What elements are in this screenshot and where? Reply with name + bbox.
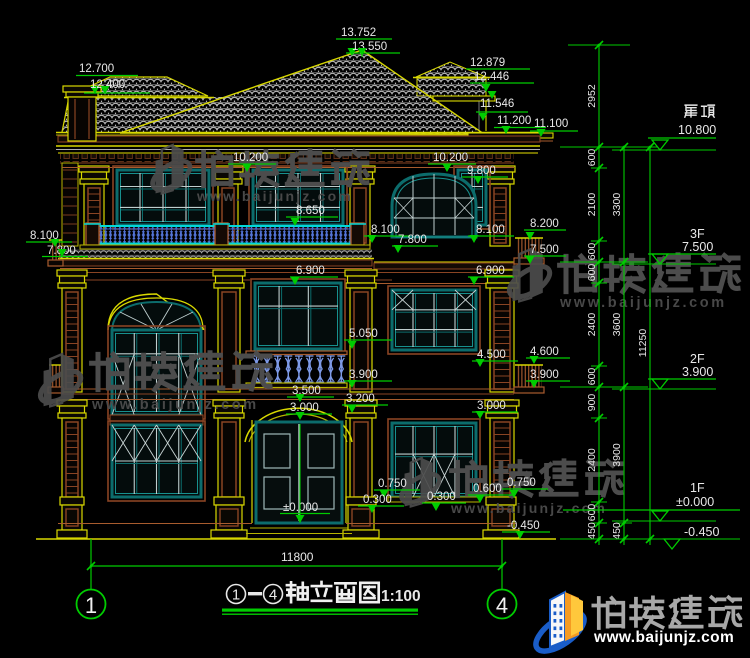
svg-text:www.baijunjz.com: www.baijunjz.com: [196, 188, 353, 204]
svg-text:2F: 2F: [690, 352, 705, 366]
svg-text:1:100: 1:100: [381, 588, 421, 605]
svg-text:7.800: 7.800: [398, 234, 427, 246]
svg-text:±0.000: ±0.000: [676, 495, 714, 509]
svg-text:2952: 2952: [586, 84, 598, 108]
svg-text:8.100: 8.100: [371, 224, 400, 236]
svg-text:3.900: 3.900: [349, 369, 378, 381]
svg-text:9.800: 9.800: [467, 165, 496, 177]
svg-text:www.baijunjz.com: www.baijunjz.com: [593, 629, 734, 646]
svg-text:0.600: 0.600: [473, 483, 502, 495]
svg-text:600: 600: [586, 504, 598, 522]
svg-text:11.100: 11.100: [534, 118, 568, 130]
svg-text:600: 600: [586, 149, 598, 167]
svg-text:6.900: 6.900: [476, 265, 505, 277]
svg-text:450: 450: [611, 522, 623, 540]
svg-text:3.000: 3.000: [477, 400, 506, 412]
svg-text:www.baijunjz.com: www.baijunjz.com: [559, 295, 727, 311]
svg-text:10.200: 10.200: [433, 152, 468, 164]
svg-text:5.050: 5.050: [349, 328, 378, 340]
svg-text:8.200: 8.200: [530, 218, 559, 230]
svg-text:www.baijunjz.com: www.baijunjz.com: [450, 500, 607, 516]
svg-text:600: 600: [586, 368, 598, 386]
svg-text:0.750: 0.750: [507, 477, 536, 489]
svg-text:4: 4: [496, 593, 508, 618]
svg-text:450: 450: [586, 522, 598, 540]
svg-text:3.000: 3.000: [290, 402, 319, 414]
svg-text:-0.450: -0.450: [684, 525, 719, 539]
svg-text:2100: 2100: [586, 193, 598, 217]
svg-text:8.650: 8.650: [296, 205, 325, 217]
svg-text:3.200: 3.200: [346, 393, 375, 405]
svg-text:10.200: 10.200: [233, 152, 268, 164]
svg-text:12.700: 12.700: [79, 63, 114, 75]
svg-text:0.300: 0.300: [363, 494, 392, 506]
svg-text:600: 600: [586, 264, 598, 282]
svg-text:7.500: 7.500: [530, 244, 559, 256]
svg-text:-0.450: -0.450: [507, 520, 540, 532]
svg-text:11250: 11250: [637, 329, 649, 358]
svg-text:8.100: 8.100: [476, 224, 505, 236]
svg-text:1F: 1F: [690, 481, 705, 495]
svg-text:12.446: 12.446: [474, 71, 509, 83]
svg-text:12.879: 12.879: [470, 57, 505, 69]
svg-text:3.900: 3.900: [682, 365, 713, 379]
svg-text:0.750: 0.750: [378, 478, 407, 490]
svg-text:www.baijunjz.com: www.baijunjz.com: [91, 397, 259, 413]
svg-text:13.550: 13.550: [352, 41, 387, 53]
svg-text:3600: 3600: [611, 313, 623, 337]
svg-text:3F: 3F: [690, 227, 705, 241]
svg-text:13.752: 13.752: [341, 27, 376, 39]
svg-text:2400: 2400: [586, 313, 598, 337]
svg-text:1: 1: [232, 587, 240, 604]
svg-text:11.200: 11.200: [497, 115, 531, 127]
svg-text:2400: 2400: [586, 448, 598, 472]
svg-text:6.900: 6.900: [296, 265, 325, 277]
svg-text:4: 4: [269, 587, 277, 604]
svg-text:7.500: 7.500: [682, 240, 713, 254]
svg-text:0.300: 0.300: [427, 491, 456, 503]
svg-text:900: 900: [586, 394, 598, 412]
svg-text:11800: 11800: [281, 550, 314, 564]
svg-text:3300: 3300: [611, 193, 623, 217]
svg-text:10.800: 10.800: [678, 123, 716, 137]
svg-text:3900: 3900: [611, 443, 623, 467]
svg-text:11.546: 11.546: [480, 98, 514, 110]
svg-text:600: 600: [586, 243, 598, 261]
svg-text:1: 1: [85, 593, 97, 618]
svg-text:3.900: 3.900: [530, 369, 559, 381]
